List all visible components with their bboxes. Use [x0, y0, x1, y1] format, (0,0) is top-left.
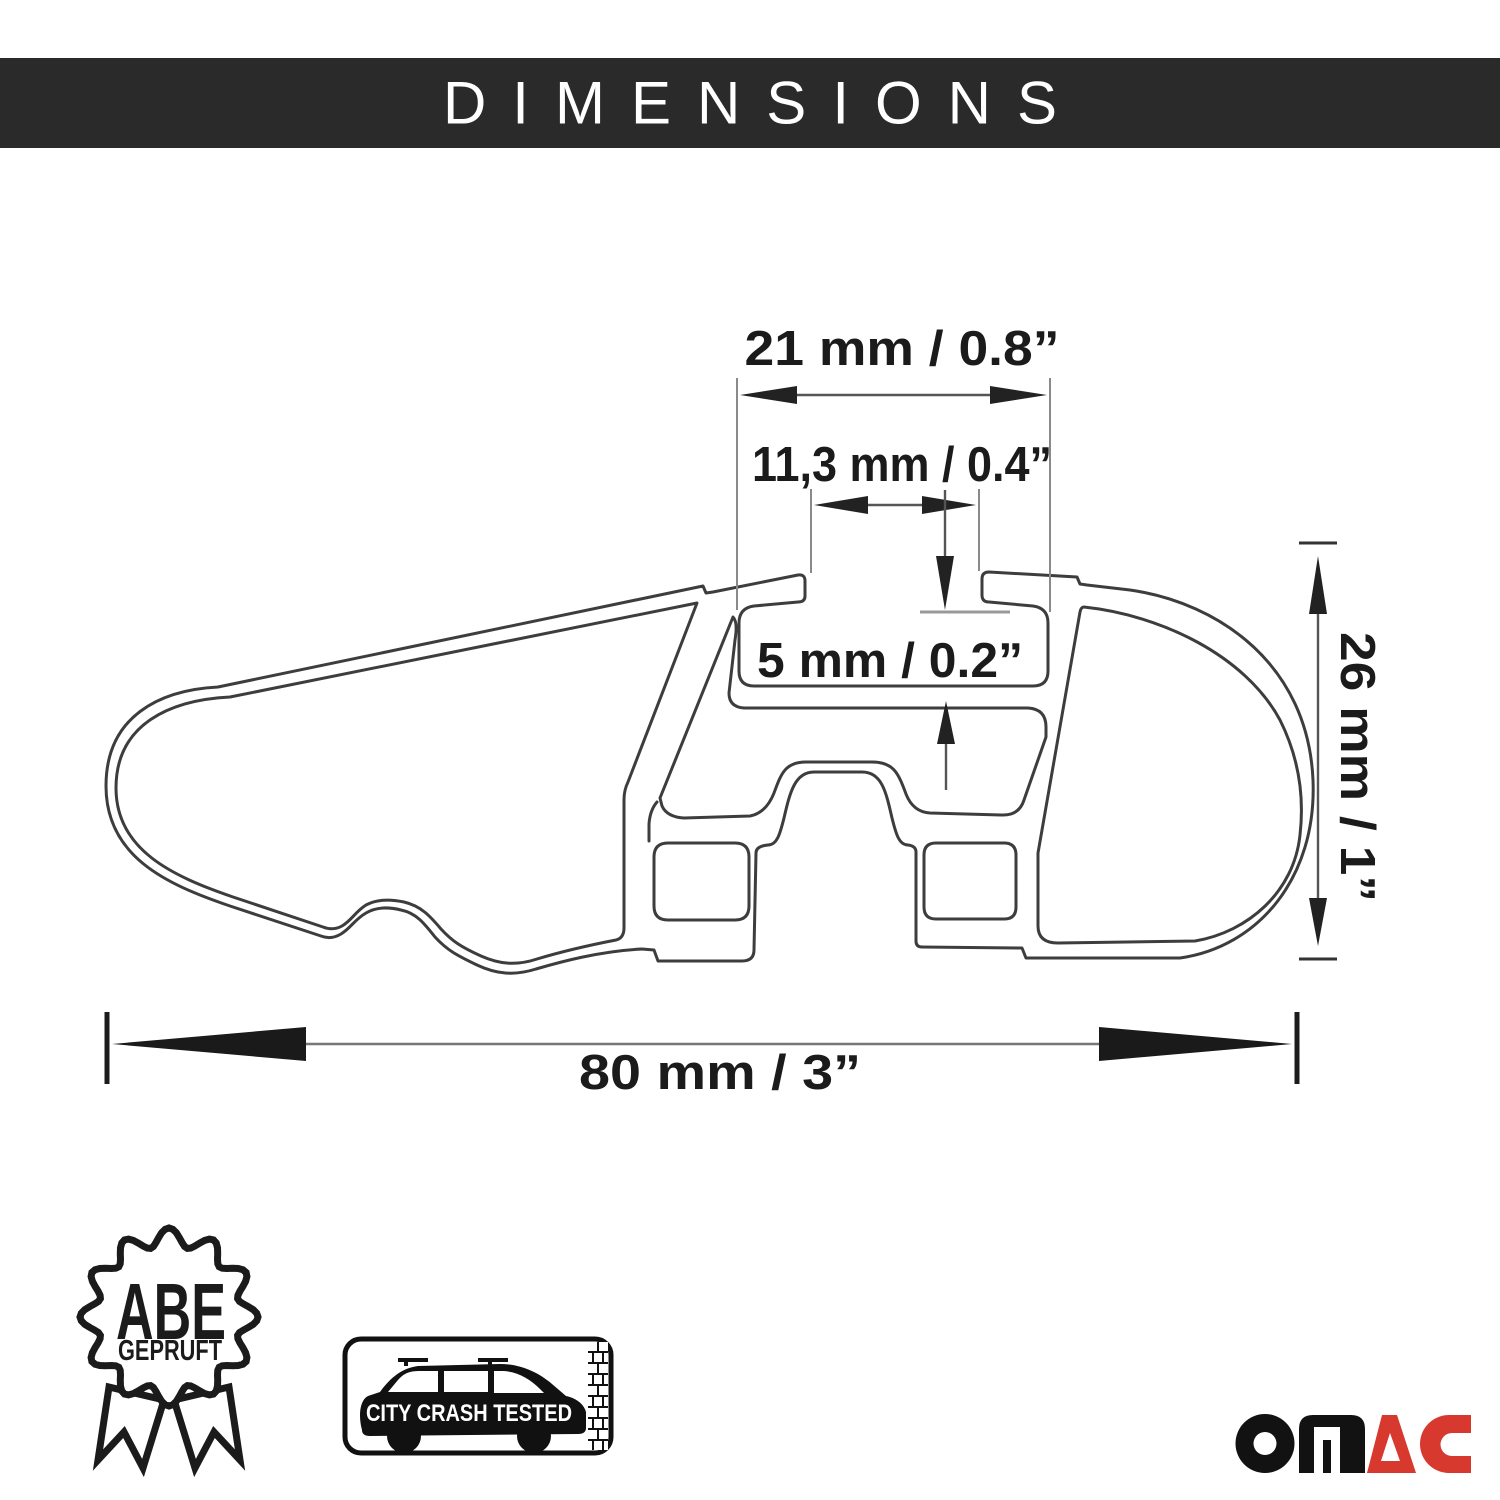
svg-text:11,3 mm / 0.4”: 11,3 mm / 0.4” — [752, 438, 1052, 492]
svg-text:26 mm / 1”: 26 mm / 1” — [1330, 632, 1384, 902]
svg-text:5 mm / 0.2”: 5 mm / 0.2” — [757, 634, 1023, 688]
svg-text:GEPRUFT: GEPRUFT — [118, 1335, 222, 1367]
svg-text:CITY CRASH TESTED: CITY CRASH TESTED — [366, 1400, 572, 1427]
svg-text:80 mm / 3”: 80 mm / 3” — [579, 1046, 861, 1100]
svg-text:21 mm / 0.8”: 21 mm / 0.8” — [745, 322, 1060, 376]
